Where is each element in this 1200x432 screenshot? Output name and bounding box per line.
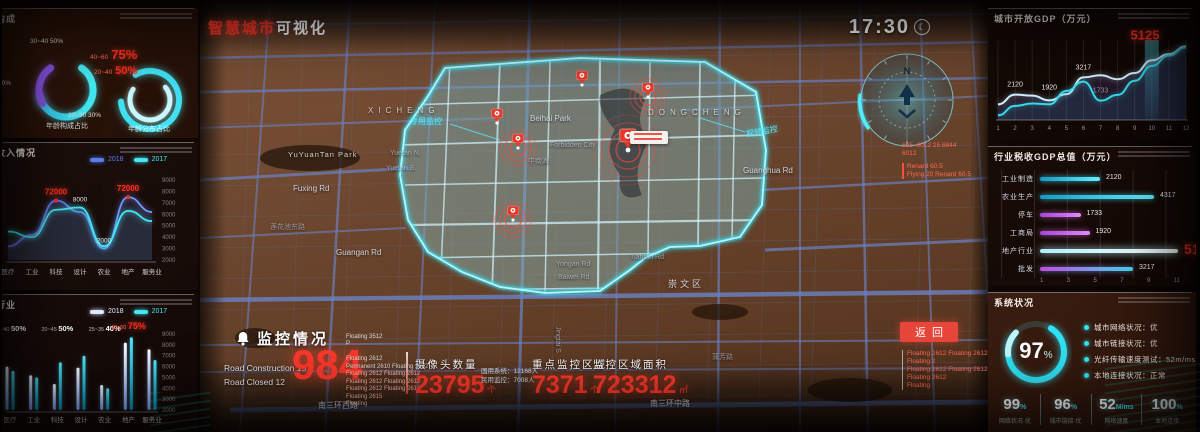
tax-x-tick: 5 — [1094, 278, 1097, 284]
panel-desc-decoration — [1118, 297, 1190, 305]
tax-row-label: 工业制造 — [992, 174, 1040, 184]
svg-text:8000: 8000 — [162, 189, 176, 195]
donut2-label-2: 20~4050% — [94, 61, 137, 79]
svg-text:6: 6 — [1082, 126, 1086, 132]
tax-x-axis: 1357911 — [1040, 278, 1180, 284]
tax-row-value: 1733 — [1087, 210, 1103, 217]
svg-text:10: 10 — [1148, 126, 1155, 132]
svg-text:9000: 9000 — [162, 178, 176, 184]
tax-row-工商局: 工商局1920 — [992, 224, 1190, 242]
tax-row-地产行业: 地产行业5134 — [992, 242, 1190, 260]
legend-item-2017: 2017 — [134, 308, 168, 315]
stat-unit: % — [1020, 404, 1026, 411]
system-gauge: 97% — [1000, 316, 1072, 388]
tax-row-track: 4317 — [1040, 188, 1190, 206]
svg-text:服务业: 服务业 — [142, 267, 162, 276]
panel-city-gdp: 城市开放GDP（万元） 1234567891011122120192032171… — [988, 8, 1196, 140]
tax-row-label: 批发 — [992, 264, 1040, 274]
gauge-value: 97 — [1019, 338, 1043, 363]
legend-item-2017: 2017 — [134, 156, 168, 163]
svg-text:6000: 6000 — [162, 365, 176, 371]
system-item-本地连接状况: 本地连接状况：正常 — [1084, 370, 1196, 381]
svg-text:农业: 农业 — [98, 415, 112, 424]
compass-note-line: 605~6012 25.6844 — [902, 142, 971, 150]
system-item-城市网络状况: 城市网络状况：优 — [1084, 322, 1196, 333]
tax-row-label: 地产行业 — [992, 246, 1040, 256]
tax-x-tick: 3 — [1067, 278, 1070, 284]
system-stat-cell: 52M/ms网络速度 — [1091, 394, 1142, 425]
svg-text:2000: 2000 — [162, 258, 176, 264]
tax-row-bar — [1040, 231, 1090, 235]
income-legend: 20182017 — [90, 156, 167, 163]
legend-swatch — [134, 158, 148, 162]
tax-row-农业生产: 农业生产4317 — [992, 188, 1190, 206]
svg-text:4: 4 — [1048, 126, 1052, 132]
monitor-stat-监控区域面积: 监控区域面积723312 ㎡ — [593, 357, 688, 403]
status-dot-icon — [1084, 357, 1089, 362]
svg-text:设计: 设计 — [75, 415, 89, 424]
donut1-label-top: 30~40 50% — [30, 38, 63, 45]
tax-row-bar — [1040, 177, 1100, 181]
legend-label: 2017 — [152, 308, 168, 315]
stat-unit: % — [1177, 404, 1183, 411]
svg-text:11: 11 — [1166, 126, 1173, 132]
system-stat-number: 52M/ms — [1092, 396, 1142, 414]
industry-bar-chart: 医疗工业科技设计农业地产服务业30~40 50%20~45 50%25~35 4… — [2, 318, 198, 430]
panel-industry-tax-gdp: 行业税收GDP总值（万元） 工业制造2120农业生产4317停车1733工商局1… — [988, 146, 1196, 286]
svg-text:地产: 地产 — [122, 415, 136, 424]
svg-text:7: 7 — [1099, 126, 1103, 132]
svg-text:72000: 72000 — [117, 184, 140, 193]
gauge-unit: % — [1044, 350, 1053, 361]
side-note-line: 国用系统：12168人 — [481, 367, 538, 376]
stat-value: 100 — [1151, 396, 1176, 413]
status-dot-icon — [1084, 373, 1089, 378]
panel-desc-decoration — [120, 13, 192, 21]
panel-industry-income: 行业收入情况 20182017 720007200080002000900080… — [2, 142, 198, 290]
svg-text:工业: 工业 — [27, 415, 41, 424]
svg-text:8000: 8000 — [162, 343, 176, 349]
panel-desc-decoration — [120, 147, 192, 155]
tax-row-track: 3217 — [1040, 260, 1190, 278]
compass-note-line: 6012 — [902, 150, 971, 158]
svg-text:9: 9 — [1133, 126, 1137, 132]
tax-row-bar — [1040, 195, 1154, 199]
svg-text:地产: 地产 — [122, 267, 136, 276]
tax-row-label: 工商局 — [992, 228, 1040, 238]
svg-text:3000: 3000 — [162, 397, 176, 403]
donut1-label-bottom: 20~30 30% — [68, 112, 101, 119]
below-back-line: Floating 2612 — [907, 374, 988, 382]
compass-box-line: Flying 20 Renard 60.5 — [907, 171, 971, 179]
panel-income-industry: 收入行业 20182017 医疗工业科技设计农业地产服务业30~40 50%20… — [2, 294, 198, 432]
dashboard-stage: 年龄构成 30~40 50% 20~30 30% 20% 年龄构成占比 40~6… — [0, 0, 1200, 432]
svg-text:5: 5 — [1065, 126, 1069, 132]
system-stat-number: 99% — [990, 396, 1040, 414]
panel-system-status: 系统状况 97% 城市网络状况：优城市链接状况：优光纤传输速度测试：52m/ms… — [988, 292, 1196, 432]
legend-swatch — [90, 158, 104, 162]
status-dot-icon — [1084, 341, 1089, 346]
tax-row-value: 1920 — [1096, 228, 1112, 235]
tax-x-tick: 1 — [1040, 278, 1043, 284]
svg-text:5125: 5125 — [1131, 28, 1160, 42]
svg-text:2000: 2000 — [97, 238, 112, 245]
svg-text:设计: 设计 — [74, 267, 88, 276]
stat-unit: % — [1071, 404, 1077, 411]
svg-text:72000: 72000 — [45, 188, 68, 197]
stat-unit: M/ms — [1116, 404, 1134, 411]
system-stat-cell: 100%本地连接 — [1141, 394, 1192, 425]
donut1-caption: 年龄构成占比 — [32, 121, 102, 131]
tax-row-track: 1733 — [1040, 206, 1190, 224]
below-back-line: Floating 2 — [907, 358, 988, 366]
tax-row-value: 4317 — [1160, 192, 1176, 199]
svg-text:12: 12 — [1183, 126, 1190, 132]
svg-text:9000: 9000 — [162, 332, 176, 338]
monitor-stats-layer: 摄像头数量23795 个重点监控区域7371 个监控区域面积723312 ㎡ — [200, 0, 988, 432]
tax-bar-rows: 工业制造2120农业生产4317停车1733工商局1920地产行业5134批发3… — [992, 170, 1190, 278]
system-item-text: 本地连接状况：正常 — [1094, 370, 1166, 381]
legend-swatch — [90, 310, 104, 314]
svg-text:医疗: 医疗 — [2, 267, 15, 276]
tax-row-value: 3217 — [1139, 264, 1155, 271]
svg-text:5000: 5000 — [162, 224, 176, 230]
system-item-text: 光纤传输速度测试：52m/ms — [1094, 354, 1196, 365]
tax-row-停车: 停车1733 — [992, 206, 1190, 224]
system-stat-caption: 城市链接·优 — [1041, 416, 1091, 425]
panel-desc-decoration — [120, 299, 192, 307]
system-stat-number: 96% — [1041, 396, 1091, 414]
svg-text:4000: 4000 — [162, 386, 176, 392]
below-back-line: Floating 2612 Floating 2612 — [907, 350, 988, 358]
stat-value: 99 — [1003, 396, 1020, 413]
svg-text:农业: 农业 — [98, 267, 112, 276]
below-back-line: Floating 2612 Floating 2612 — [907, 366, 988, 374]
legend-label: 2018 — [108, 156, 124, 163]
panel-desc-decoration — [1118, 151, 1190, 159]
svg-text:工业: 工业 — [26, 267, 40, 276]
system-stat-number: 100% — [1142, 396, 1192, 414]
monitor-stat-label: 监控区域面积 — [593, 357, 688, 372]
donut2-caption: 年龄分布占比 — [114, 124, 184, 134]
system-stat-cell: 99%网络状况·优 — [990, 394, 1040, 425]
monitor-side-notes: 国用系统：12168人民用监控：7008人 — [481, 367, 538, 385]
tax-row-批发: 批发3217 — [992, 260, 1190, 278]
legend-label: 2017 — [152, 156, 168, 163]
tax-row-label: 停车 — [992, 210, 1040, 220]
system-stat-caption: 本地连接 — [1142, 416, 1192, 425]
monitor-stat-unit: ㎡ — [676, 385, 688, 395]
svg-text:1920: 1920 — [1041, 85, 1057, 92]
svg-text:8: 8 — [1116, 126, 1120, 132]
svg-text:2000: 2000 — [162, 408, 176, 414]
svg-text:30~40 50%: 30~40 50% — [2, 324, 26, 333]
city-map[interactable]: N XICHENGDONGCHENGBeihai ParkForbidden C… — [200, 0, 988, 432]
system-stat-cell: 96%城市链接·优 — [1040, 394, 1091, 425]
monitor-stat-unit: 个 — [485, 385, 497, 395]
income-line-chart: 7200072000800020009000800070006000500040… — [2, 168, 198, 288]
compass-box-line: Renard 60.5 — [907, 163, 971, 171]
system-item-光纤传输速度测试: 光纤传输速度测试：52m/ms — [1084, 354, 1196, 365]
svg-text:3: 3 — [1031, 126, 1035, 132]
system-stats: 99%网络状况·优96%城市链接·优52M/ms网络速度100%本地连接 — [990, 394, 1192, 425]
tax-x-tick: 9 — [1147, 278, 1150, 284]
svg-text:2: 2 — [1013, 126, 1017, 132]
svg-text:7000: 7000 — [162, 354, 176, 360]
system-item-text: 城市链接状况：优 — [1094, 338, 1158, 349]
svg-text:40~60 75%: 40~60 75% — [111, 321, 146, 331]
svg-text:医疗: 医疗 — [4, 415, 18, 424]
compass-note-box: Renard 60.5Flying 20 Renard 60.5 — [902, 163, 971, 179]
tax-row-bar — [1040, 249, 1178, 253]
compass-annotations: 605~6012 25.68446012Renard 60.5Flying 20… — [902, 142, 971, 179]
panel-age-composition: 年龄构成 30~40 50% 20~30 30% 20% 年龄构成占比 40~6… — [2, 8, 198, 138]
tax-row-bar — [1040, 267, 1133, 271]
tax-row-工业制造: 工业制造2120 — [992, 170, 1190, 188]
below-back-line: Floating — [907, 382, 988, 390]
legend-item-2018: 2018 — [90, 156, 124, 163]
legend-swatch — [134, 310, 148, 314]
donut1-label-left: 20% — [2, 80, 11, 87]
panel-desc-decoration — [1118, 13, 1190, 21]
svg-text:6000: 6000 — [162, 212, 176, 218]
status-dot-icon — [1084, 325, 1089, 330]
gdp-line-chart: 12345678910111221201920321717335125 — [990, 28, 1194, 138]
legend-label: 2018 — [108, 308, 124, 315]
svg-text:3000: 3000 — [162, 247, 176, 253]
svg-text:7000: 7000 — [162, 201, 176, 207]
system-stat-caption: 网络速度 — [1092, 416, 1142, 425]
tax-row-bar — [1040, 213, 1081, 217]
system-stat-caption: 网络状况·优 — [990, 416, 1040, 425]
tax-row-label: 农业生产 — [992, 192, 1040, 202]
tax-x-tick: 7 — [1120, 278, 1123, 284]
svg-text:1: 1 — [996, 126, 1000, 132]
tax-x-tick: 11 — [1174, 278, 1180, 284]
svg-text:服务业: 服务业 — [142, 415, 162, 424]
system-items: 城市网络状况：优城市链接状况：优光纤传输速度测试：52m/ms本地连接状况：正常 — [1084, 322, 1196, 386]
side-note-line: 民用监控：7008人 — [481, 376, 538, 385]
tax-row-value: 5134 — [1184, 241, 1196, 257]
svg-text:20~45 50%: 20~45 50% — [41, 324, 73, 333]
svg-text:科技: 科技 — [51, 415, 65, 424]
legend-item-2018: 2018 — [90, 308, 124, 315]
stat-value: 96 — [1054, 396, 1071, 413]
tax-row-track: 5134 — [1040, 242, 1190, 260]
svg-text:2120: 2120 — [1007, 82, 1023, 89]
tax-row-value: 2120 — [1106, 174, 1122, 181]
tax-row-track: 2120 — [1040, 170, 1190, 188]
svg-text:1733: 1733 — [1093, 88, 1109, 95]
monitor-stat-value: 723312 ㎡ — [593, 372, 688, 403]
industry-legend: 20182017 — [90, 308, 167, 315]
svg-text:3217: 3217 — [1076, 64, 1092, 71]
stat-value: 52 — [1099, 396, 1116, 413]
svg-text:8000: 8000 — [73, 196, 88, 203]
system-item-城市链接状况: 城市链接状况：优 — [1084, 338, 1196, 349]
svg-text:科技: 科技 — [50, 267, 64, 276]
system-item-text: 城市网络状况：优 — [1094, 322, 1158, 333]
below-back-annotations: Floating 2612 Floating 2612Floating 2Flo… — [902, 350, 988, 390]
svg-text:4000: 4000 — [162, 235, 176, 241]
svg-text:5000: 5000 — [162, 375, 176, 381]
tax-row-track: 1920 — [1040, 224, 1190, 242]
